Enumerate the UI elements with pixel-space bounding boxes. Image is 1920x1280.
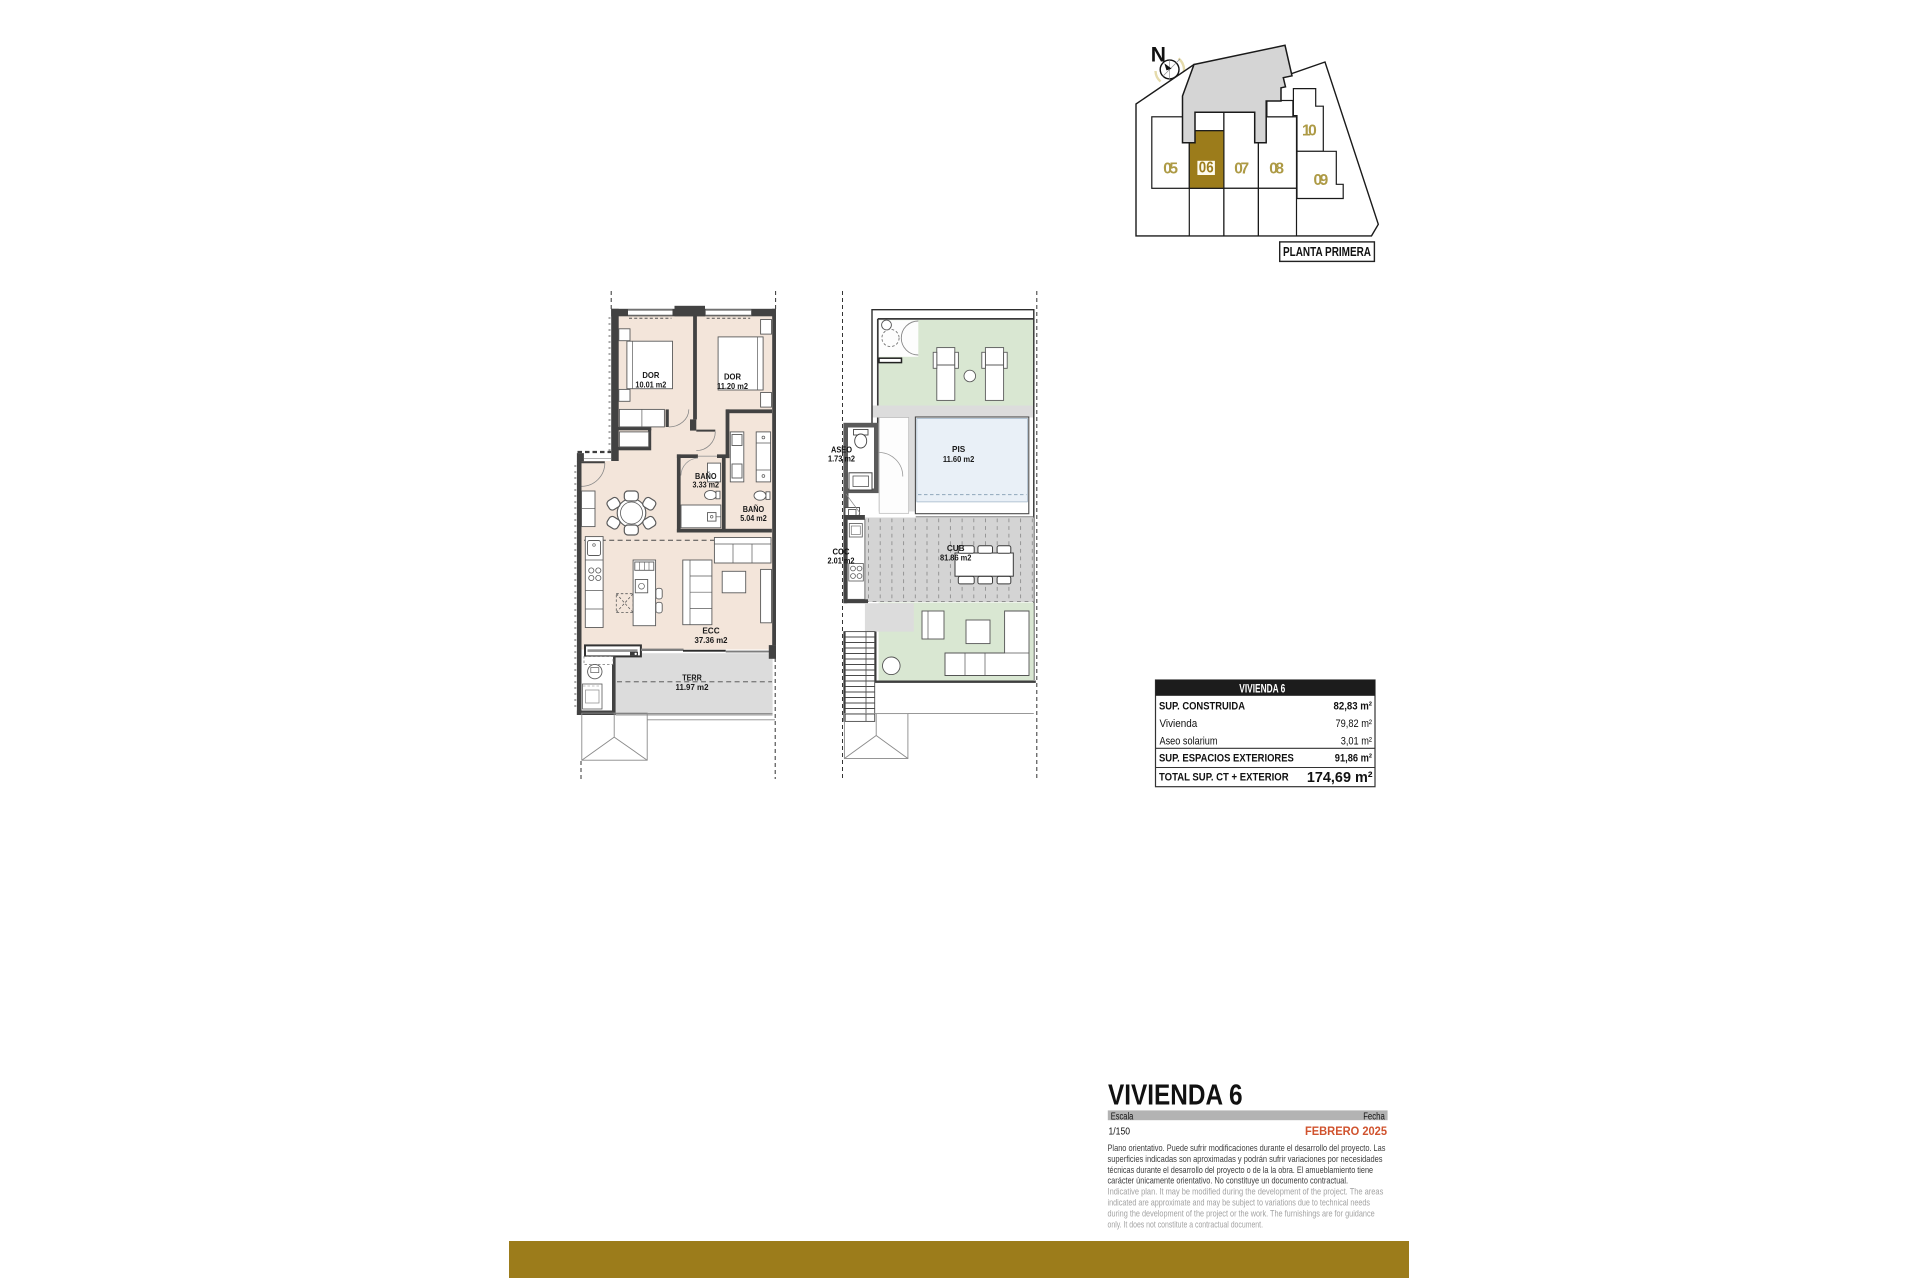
- svg-text:81.86 m2: 81.86 m2: [940, 554, 972, 563]
- svg-text:1/150: 1/150: [1109, 1127, 1131, 1138]
- svg-text:08: 08: [1269, 161, 1284, 178]
- svg-text:during the development of the: during the development of the project or…: [1108, 1208, 1375, 1218]
- svg-text:37.36 m2: 37.36 m2: [695, 636, 728, 645]
- svg-text:Escala: Escala: [1111, 1112, 1134, 1123]
- svg-text:174,69 m²: 174,69 m²: [1307, 769, 1373, 786]
- svg-text:2.01 m2: 2.01 m2: [828, 557, 856, 566]
- svg-text:79,82 m²: 79,82 m²: [1336, 718, 1373, 730]
- svg-text:Indicative plan. It may be mod: Indicative plan. It may be modified duri…: [1108, 1187, 1384, 1197]
- svg-text:ASEO: ASEO: [831, 446, 852, 455]
- svg-text:BAÑO: BAÑO: [743, 505, 765, 514]
- svg-text:VIVIENDA 6: VIVIENDA 6: [1239, 683, 1285, 695]
- svg-text:only. It does not constitute a: only. It does not constitute a contractu…: [1108, 1219, 1264, 1229]
- svg-text:82,83 m²: 82,83 m²: [1334, 701, 1373, 713]
- svg-text:Vivienda: Vivienda: [1160, 718, 1198, 730]
- svg-text:10.01 m2: 10.01 m2: [635, 381, 666, 390]
- svg-text:Plano orientativo. Puede sufri: Plano orientativo. Puede sufrir modifica…: [1108, 1143, 1386, 1153]
- svg-text:VIVIENDA 6: VIVIENDA 6: [1108, 1079, 1243, 1111]
- svg-text:PLANTA PRIMERA: PLANTA PRIMERA: [1283, 245, 1371, 259]
- svg-text:superficies indicadas son apro: superficies indicadas son aproximadas y …: [1108, 1154, 1383, 1164]
- svg-text:N: N: [1151, 44, 1166, 67]
- svg-text:DOR: DOR: [724, 373, 741, 382]
- svg-text:FEBRERO 2025: FEBRERO 2025: [1305, 1126, 1388, 1138]
- svg-text:carácter únicamente orientativ: carácter únicamente orientativo. No cons…: [1108, 1176, 1349, 1186]
- svg-text:07: 07: [1234, 161, 1249, 178]
- svg-text:Aseo solarium: Aseo solarium: [1160, 736, 1218, 748]
- svg-text:indicated are approximate and: indicated are approximate and may be sub…: [1108, 1198, 1371, 1208]
- svg-text:COC: COC: [833, 548, 850, 557]
- svg-text:11.20 m2: 11.20 m2: [717, 382, 748, 391]
- svg-text:DOR: DOR: [642, 371, 659, 380]
- svg-text:3,01 m²: 3,01 m²: [1341, 736, 1373, 748]
- svg-text:11.97 m2: 11.97 m2: [676, 683, 709, 692]
- svg-text:09: 09: [1314, 172, 1329, 189]
- svg-text:TOTAL SUP. CT + EXTERIOR: TOTAL SUP. CT + EXTERIOR: [1159, 772, 1289, 784]
- svg-text:3.33 m2: 3.33 m2: [693, 481, 720, 490]
- svg-text:5.04 m2: 5.04 m2: [740, 514, 767, 523]
- svg-text:BAÑO: BAÑO: [695, 472, 717, 481]
- svg-text:SUP. CONSTRUIDA: SUP. CONSTRUIDA: [1159, 701, 1245, 713]
- svg-text:05: 05: [1163, 161, 1178, 178]
- svg-text:SUP. ESPACIOS EXTERIORES: SUP. ESPACIOS EXTERIORES: [1159, 753, 1294, 765]
- svg-text:ECC: ECC: [702, 627, 719, 636]
- svg-text:1.73 m2: 1.73 m2: [828, 455, 856, 464]
- svg-text:CUB: CUB: [947, 544, 965, 553]
- svg-text:Fecha: Fecha: [1363, 1112, 1385, 1123]
- svg-text:10: 10: [1302, 123, 1317, 140]
- svg-text:TERR: TERR: [682, 674, 702, 683]
- svg-text:PIS: PIS: [952, 445, 966, 454]
- svg-text:91,86 m²: 91,86 m²: [1335, 753, 1372, 765]
- svg-text:06: 06: [1199, 159, 1214, 176]
- svg-text:11.60 m2: 11.60 m2: [943, 455, 975, 464]
- svg-text:técnicas durante el desarrollo: técnicas durante el desarrollo del proye…: [1108, 1165, 1374, 1175]
